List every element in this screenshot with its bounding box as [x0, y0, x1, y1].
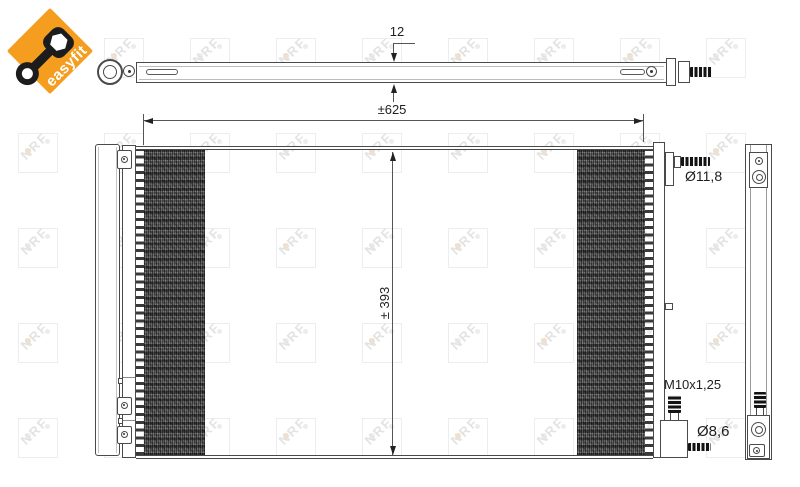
watermark-tile: NRF	[534, 418, 574, 458]
watermark-letters: NRF	[448, 224, 482, 258]
mounting-ring-inner	[103, 65, 117, 79]
tube-ends-right	[645, 150, 653, 455]
top-fitting-bracket	[665, 152, 674, 186]
pin-dot-left	[128, 70, 131, 73]
side-port-stub	[688, 443, 711, 451]
bottom-fitting-block	[660, 420, 688, 458]
watermark-tile: NRF	[276, 323, 316, 363]
watermark-letters: NRF	[448, 414, 482, 448]
pin-dot-right	[650, 70, 653, 73]
dim-height-label: ± 393	[377, 273, 391, 333]
dim-thickness-label: 12	[380, 24, 414, 39]
watermark-letters: NRF	[18, 414, 52, 448]
watermark-letters: NRF	[362, 414, 396, 448]
core-top-edge	[136, 146, 653, 150]
dim-arrow-down	[391, 53, 397, 62]
watermark-letters: NRF	[18, 224, 52, 258]
watermark-letters: NRF	[448, 319, 482, 353]
watermark-letters: NRF	[534, 414, 568, 448]
watermark-tile: NRF	[362, 133, 402, 173]
end-bracket-flange	[666, 58, 676, 86]
core-bottom-edge	[136, 455, 653, 459]
watermark-tile: NRF	[706, 228, 746, 268]
watermark-letters: NRF	[18, 129, 52, 163]
watermark-tile: NRF	[448, 133, 488, 173]
top-fitting-step	[674, 156, 681, 168]
tube-ends-left	[136, 150, 144, 455]
easyfit-logo: easyfit	[2, 2, 102, 102]
watermark-letters: NRF	[706, 319, 740, 353]
threaded-stud-bottom	[668, 395, 681, 413]
core-fins-left	[144, 150, 205, 455]
core-fins-right	[577, 150, 645, 455]
watermark-letters: NRF	[706, 224, 740, 258]
watermark-tile: NRF	[448, 228, 488, 268]
dim-arrow-right	[634, 118, 643, 124]
right-header-tab	[665, 303, 673, 310]
condenser-technical-drawing: NRFNRFNRFNRFNRFNRFNRFNRFNRFNRFNRFNRFNRFN…	[0, 0, 800, 487]
side-stud-neck	[756, 407, 764, 416]
top-port-diameter-label: Ø11,8	[685, 168, 722, 184]
watermark-tile: NRF	[276, 133, 316, 173]
watermark-tile: NRF	[18, 133, 58, 173]
watermark-tile: NRF	[534, 323, 574, 363]
watermark-letters: NRF	[276, 319, 310, 353]
threaded-stud-top-view	[690, 67, 712, 77]
dim-arrow-up	[391, 84, 397, 93]
dim-arrow-left	[144, 118, 153, 124]
watermark-letters: NRF	[18, 319, 52, 353]
watermark-tile: NRF	[448, 418, 488, 458]
threaded-stud-top-right	[681, 157, 710, 166]
watermark-letters: NRF	[534, 319, 568, 353]
watermark-letters: NRF	[706, 129, 740, 163]
side-port-ring-inner	[755, 426, 763, 434]
end-bracket-body	[678, 61, 690, 83]
watermark-tile: NRF	[362, 228, 402, 268]
dim-height-arrow-bottom	[390, 446, 396, 455]
top-view-bar	[136, 62, 667, 83]
bottom-stud-neck	[670, 412, 679, 421]
watermark-tile: NRF	[706, 323, 746, 363]
bottom-port-diameter-label: Ø8,6	[697, 423, 730, 440]
watermark-tile: NRF	[18, 418, 58, 458]
watermark-tile: NRF	[706, 133, 746, 173]
watermark-tile: NRF	[706, 38, 746, 78]
watermark-letters: NRF	[276, 414, 310, 448]
watermark-letters: NRF	[706, 34, 740, 68]
watermark-tile: NRF	[534, 133, 574, 173]
slot-right	[620, 69, 645, 75]
watermark-tile: NRF	[276, 418, 316, 458]
watermark-letters: NRF	[362, 224, 396, 258]
watermark-tile: NRF	[534, 228, 574, 268]
right-header-tank	[653, 142, 665, 458]
bottom-thread-label: M10x1,25	[664, 377, 721, 392]
side-port-circle-large-inner	[756, 174, 763, 181]
watermark-letters: NRF	[276, 224, 310, 258]
dim-height-arrow-top	[390, 152, 396, 161]
dim-width-label: ±625	[352, 102, 432, 117]
slot-left	[146, 69, 178, 75]
watermark-letters: NRF	[534, 224, 568, 258]
watermark-tile: NRF	[276, 228, 316, 268]
watermark-tile: NRF	[18, 323, 58, 363]
side-threaded-stud	[754, 392, 766, 408]
watermark-tile: NRF	[448, 323, 488, 363]
watermark-tile: NRF	[362, 418, 402, 458]
watermark-tile: NRF	[18, 228, 58, 268]
